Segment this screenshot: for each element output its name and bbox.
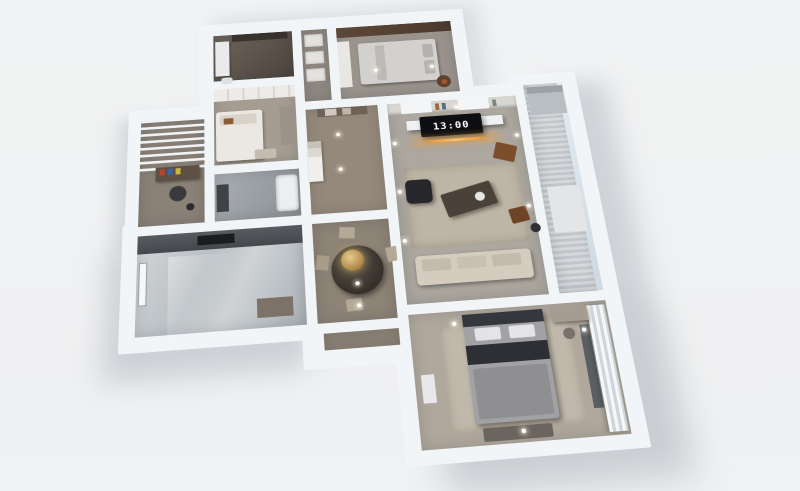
sofa-cushion [491, 253, 522, 267]
book [442, 103, 447, 110]
book [492, 99, 497, 106]
downlight [515, 133, 519, 137]
vanity [217, 184, 229, 212]
duvet-fold [374, 45, 387, 80]
dining-chair [315, 255, 329, 271]
downlight [582, 327, 587, 331]
closet-shelf [306, 68, 326, 82]
sofa-cushion [421, 258, 451, 272]
floor-reflection [167, 250, 264, 337]
room-dining [307, 214, 404, 330]
pillow [422, 44, 434, 58]
kitchen-window [138, 263, 148, 307]
tv-digital-clock: 13:00 [432, 118, 470, 131]
pillow [474, 327, 501, 341]
accent-pillow [224, 118, 234, 125]
double-bed [358, 39, 441, 85]
toilet [221, 77, 232, 84]
dining-chair [339, 227, 355, 239]
balcony-cabinet [526, 85, 567, 115]
headboard-accent-wall [336, 21, 452, 38]
room-master-bedroom [402, 295, 638, 457]
office-chair [169, 185, 186, 202]
book [160, 169, 165, 176]
cubby-cabinet [307, 141, 323, 182]
tv-screen: 13:00 [419, 113, 483, 137]
book [176, 168, 181, 175]
room-bedroom-3 [331, 17, 465, 104]
pillow [508, 324, 535, 338]
render-canvas: 13:00 [0, 0, 800, 450]
room-bedroom-2 [209, 80, 304, 170]
accent-chair [493, 142, 518, 162]
downlight [454, 105, 458, 109]
closet-shelf [304, 34, 323, 47]
bookshelf-panel [457, 97, 489, 110]
desk [279, 106, 295, 146]
floor-lamp [186, 203, 194, 211]
framed-art [325, 109, 337, 116]
sofa [415, 248, 535, 286]
sofa-cushion [456, 255, 486, 269]
closet-shelf [305, 51, 324, 65]
bathtub [275, 174, 299, 212]
room-study-balcony [133, 112, 210, 232]
room-bathroom-main [209, 164, 306, 227]
wardrobe [214, 84, 295, 102]
bookshelf-panel [400, 101, 432, 114]
wardrobe [337, 41, 353, 88]
room-bathroom-top [209, 27, 299, 86]
duvet [473, 363, 555, 419]
dark-throw [466, 340, 551, 365]
book [168, 169, 173, 176]
dresser [550, 306, 588, 323]
black-armchair [405, 179, 434, 204]
room-hall-closet [296, 25, 337, 106]
bedside-mat [421, 374, 437, 403]
bench [255, 148, 277, 159]
room-foyer [300, 101, 392, 220]
side-stool [530, 223, 542, 233]
apartment-plan: 13:00 [124, 6, 715, 486]
bathroom-counter [232, 31, 288, 41]
framed-art [342, 108, 351, 115]
floor-mat [257, 296, 294, 318]
room-kitchen [129, 220, 313, 344]
book [435, 103, 440, 110]
bathroom-shelf-unit [215, 41, 230, 76]
